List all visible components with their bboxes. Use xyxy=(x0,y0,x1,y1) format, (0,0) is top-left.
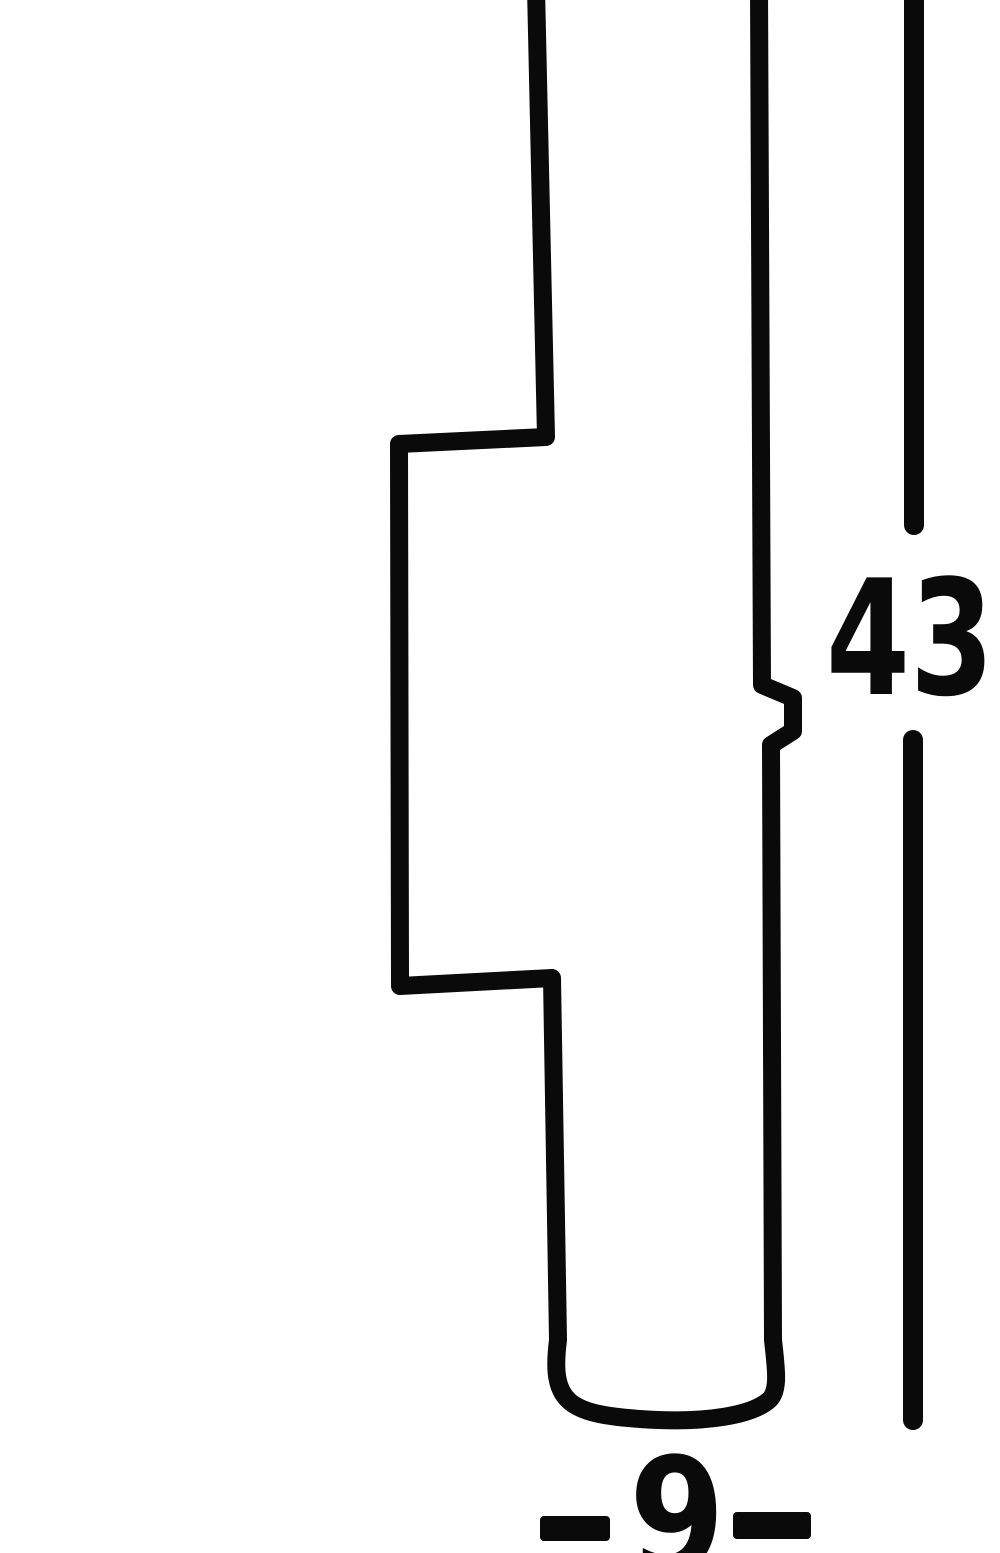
diagram-background xyxy=(0,0,1000,1553)
height-dimension-label: 43 xyxy=(826,545,994,732)
width-label-left-dash xyxy=(540,1516,610,1541)
width-dimension-label: 9 xyxy=(629,1423,725,1553)
dimension-diagram: 43 9 xyxy=(0,0,1000,1553)
width-label-right-dash xyxy=(733,1512,811,1539)
diagram-canvas: 43 9 xyxy=(0,0,1000,1553)
